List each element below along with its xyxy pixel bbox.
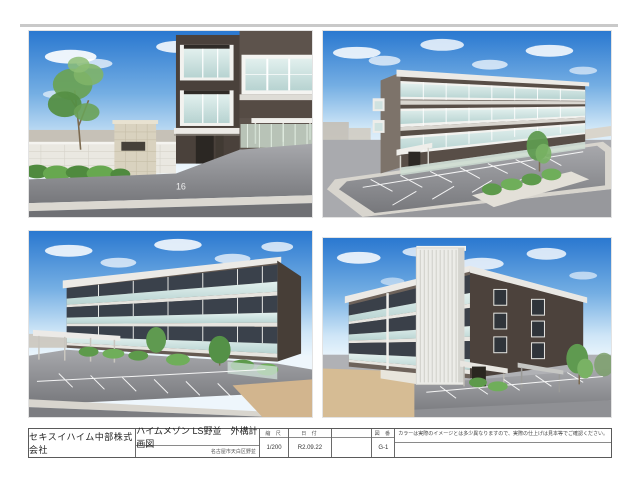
blank-label [332,429,372,438]
title-block: セキスイハイム中部株式会社 ハイムメゾン LS野並 外構計画図 名古屋市天白区野… [28,428,612,458]
date-field: 日 付 R2.09.22 [289,429,331,457]
render-panel-corner [322,237,612,418]
stair-louver-tower [416,246,466,384]
sheet-number-label: 図 番 [372,429,394,438]
aerial-scene [323,31,611,217]
blank-field [332,429,373,457]
entrance-canopy [174,128,244,134]
company-name: セキスイハイム中部株式会社 [29,429,136,457]
scale-value: 1/200 [260,438,288,457]
entrance-door [196,136,214,164]
drawing-subtitle: 名古屋市天白区野並 [136,446,259,457]
sheet-top-rule [20,24,618,27]
render-panel-aerial [322,30,612,218]
note-empty-row [395,443,611,457]
corner-scene [323,238,611,417]
entrance-scene: 16 [29,31,312,217]
sign-plate [121,142,145,151]
sheet-number-field: 図 番 G-1 [372,429,395,457]
building-right [174,31,312,164]
mesh-fence [241,124,312,148]
terrace-canopy [251,118,312,123]
sheet-number-value: G-1 [372,438,394,457]
drawing-title: ハイムメゾン LS野並 外構計画図 [136,429,259,446]
notes-cell: カラーは実際のイメージとは多少異なりますので、実際の仕上げは見本等でご確認くださ… [395,429,611,457]
entrance-door [408,152,420,167]
note-text: カラーは実際のイメージとは多少異なりますので、実際の仕上げは見本等でご確認くださ… [395,429,611,443]
parking-stall-number: 16 [176,181,186,191]
date-value: R2.09.22 [289,438,330,457]
side-wall [277,261,301,362]
scale-field: 縮 尺 1/200 [260,429,289,457]
drawing-title-cell: ハイムメゾン LS野並 外構計画図 名古屋市天白区野並 [136,429,260,457]
render-panel-front [28,230,313,418]
front-scene [29,231,312,417]
date-label: 日 付 [289,429,330,438]
blank-value [332,438,372,457]
scale-label: 縮 尺 [260,429,288,438]
render-panel-entrance: 16 [28,30,313,218]
